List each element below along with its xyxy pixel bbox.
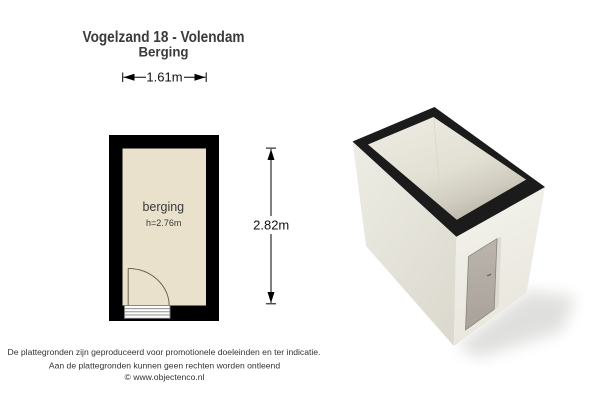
svg-text:Aan de plattegronden kunnen ge: Aan de plattegronden kunnen geen rechten… [49,360,280,370]
svg-text:berging: berging [142,200,184,214]
svg-text:h=2.76m: h=2.76m [146,218,181,228]
svg-text:Berging: Berging [139,44,189,60]
svg-text:De plattegronden zijn geproduc: De plattegronden zijn geproduceerd voor … [8,347,321,357]
svg-text:1.61m: 1.61m [146,70,182,85]
svg-text:© www.objectenco.nl: © www.objectenco.nl [125,372,205,382]
svg-text:2.82m: 2.82m [253,218,289,233]
